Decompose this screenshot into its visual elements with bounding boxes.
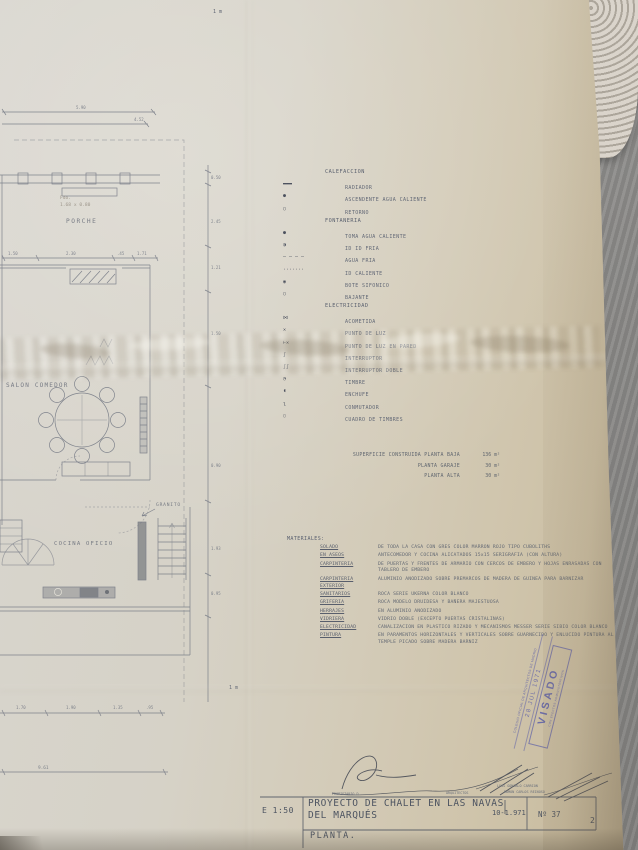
built-area-row: SUPERFICIE CONSTRUIDA PLANTA BAJA136 m² [318, 450, 504, 461]
material-term: SANITARIOS [320, 592, 378, 599]
built-area-label: SUPERFICIE CONSTRUIDA PLANTA BAJA [318, 450, 460, 461]
legend-item: ◑ID ID FRIA [283, 239, 483, 251]
legend-item-label: RETORNO [345, 210, 369, 216]
svg-text:1.70: 1.70 [16, 705, 26, 710]
legend-item: ·······ID CALIENTE [283, 264, 483, 276]
legend-item: ʅCONMUTADOR [283, 398, 483, 410]
legend-item: ▬▬▬RADIADOR [283, 178, 483, 190]
legend-symbol-icon: ○ [283, 203, 317, 215]
pencil-note: Fdo. [60, 195, 71, 201]
project-title-line2: DEL MARQUÉS [308, 810, 378, 821]
material-term: PINTURA [320, 633, 378, 647]
svg-text:1.71: 1.71 [137, 251, 147, 256]
vertical-fold-crease [246, 0, 253, 850]
svg-text:2.30: 2.30 [66, 251, 76, 256]
svg-text:1.90: 1.90 [66, 705, 76, 710]
project-title-line1: PROYECTO DE CHALET EN LAS NAVAS [308, 798, 504, 809]
blueprint-paper-sheet: 5.90 4.52 Fdo. 1.68 x 0.80 PORCHE 1.50 2… [0, 0, 638, 850]
material-term: ELECTRICIDAD [320, 625, 378, 632]
legend-item: ⋈ACOMETIDA [283, 312, 483, 324]
dim-label: 4.52 [134, 117, 144, 122]
material-term: VIDRIERA [320, 617, 378, 624]
floor-plan-drawing: 5.90 4.52 Fdo. 1.68 x 0.80 PORCHE 1.50 2… [0, 95, 250, 805]
svg-text:0.90: 0.90 [211, 463, 221, 468]
svg-text:.95: .95 [146, 705, 154, 710]
svg-text:2.45: 2.45 [211, 219, 221, 224]
material-term: CARPINTERIA [320, 562, 378, 576]
legend-symbol-icon: ◑ [283, 239, 317, 251]
material-term: EN ASEOS [320, 553, 378, 560]
built-area-row: PLANTA GARAJE30 m² [318, 461, 504, 472]
svg-text:1.21: 1.21 [211, 265, 221, 270]
lower-fold-crease [0, 686, 620, 692]
materials-title: MATERIALES: [287, 536, 325, 542]
legend-item-label: CUADRO DE TIMBRES [345, 417, 403, 423]
legend-symbol-icon: ······· [283, 264, 317, 276]
legend-symbol-icon: ● [283, 227, 317, 239]
legend-symbol-icon: ◉ [283, 276, 317, 288]
material-term: GRIFERIA [320, 600, 378, 607]
svg-text:0.95: 0.95 [211, 591, 221, 596]
dim-total: 9.61 [38, 765, 49, 771]
project-date: 10-1.971 [492, 809, 526, 817]
legend-section-title: CALEFACCION [325, 166, 483, 178]
svg-text:1.50: 1.50 [8, 251, 18, 256]
note-granito: GRANITO [156, 502, 181, 508]
legend: CALEFACCION▬▬▬RADIADOR●ASCENDENTE AGUA C… [283, 166, 483, 422]
material-term: CARPINTERIA EXTERIOR [320, 577, 378, 591]
room-label-cocina: COCINA OFICIO [54, 541, 113, 547]
legend-symbol-icon: ● [283, 190, 317, 202]
built-area-value: 136 m² [460, 450, 500, 461]
svg-text:1.93: 1.93 [211, 546, 221, 551]
legend-item-label: BAJANTE [345, 295, 369, 301]
built-area-value: 30 m² [460, 471, 500, 482]
scale-mark-top: 1 m [213, 9, 222, 15]
legend-symbol-icon: ▯ [283, 410, 317, 422]
legend-item: ●ASCENDENTE AGUA CALIENTE [283, 190, 483, 202]
built-area-label: PLANTA ALTA [318, 471, 460, 482]
built-area-label: PLANTA GARAJE [318, 461, 460, 472]
legend-symbol-icon: ◔ [283, 373, 317, 385]
corner-shadow [0, 836, 60, 850]
svg-text:1.35: 1.35 [113, 705, 123, 710]
svg-text:0.50: 0.50 [211, 175, 221, 180]
pencil-note: 1.68 x 0.80 [60, 202, 91, 208]
architect-name-1: LUIS GONZALO CARRION [497, 784, 538, 788]
legend-item: ▯CUADRO DE TIMBRES [283, 410, 483, 422]
legend-item: ◔TIMBRE [283, 373, 483, 385]
legend-section-title: FONTANERIA [325, 215, 483, 227]
drawing-scale: E 1:50 [262, 806, 294, 815]
legend-item: ○BAJANTE [283, 288, 483, 300]
built-area-table: SUPERFICIE CONSTRUIDA PLANTA BAJA136 m²P… [318, 450, 504, 482]
legend-symbol-icon: ▬▬▬ [283, 178, 317, 190]
material-term: SOLADO [320, 545, 378, 552]
svg-text:.45: .45 [117, 251, 125, 256]
legend-symbol-icon: ʅ [283, 398, 317, 410]
legend-symbol-icon: ⋈ [283, 312, 317, 324]
legend-symbol-icon: ◖ [283, 385, 317, 397]
legend-symbol-icon: — — — — [283, 251, 317, 263]
dim-label: 5.90 [76, 105, 86, 110]
legend-item: ●TOMA AGUA CALIENTE [283, 227, 483, 239]
built-area-value: 30 m² [460, 461, 500, 472]
bottom-shadow [0, 828, 638, 850]
legend-symbol-icon: ○ [283, 288, 317, 300]
built-area-row: PLANTA ALTA30 m² [318, 471, 504, 482]
room-label-porche: PORCHE [66, 218, 97, 225]
legend-item: — — — —AGUA FRIA [283, 251, 483, 263]
material-term: HERRAJES [320, 609, 378, 616]
legend-item: ○RETORNO [283, 203, 483, 215]
legend-item: ◖ENCHUFE [283, 385, 483, 397]
legend-section-title: ELECTRICIDAD [325, 300, 483, 312]
photo-of-blueprint: { "plan": { "labels": { "porche": "PORCH… [0, 0, 638, 850]
legend-item: ◉BOTE SIFONICO [283, 276, 483, 288]
